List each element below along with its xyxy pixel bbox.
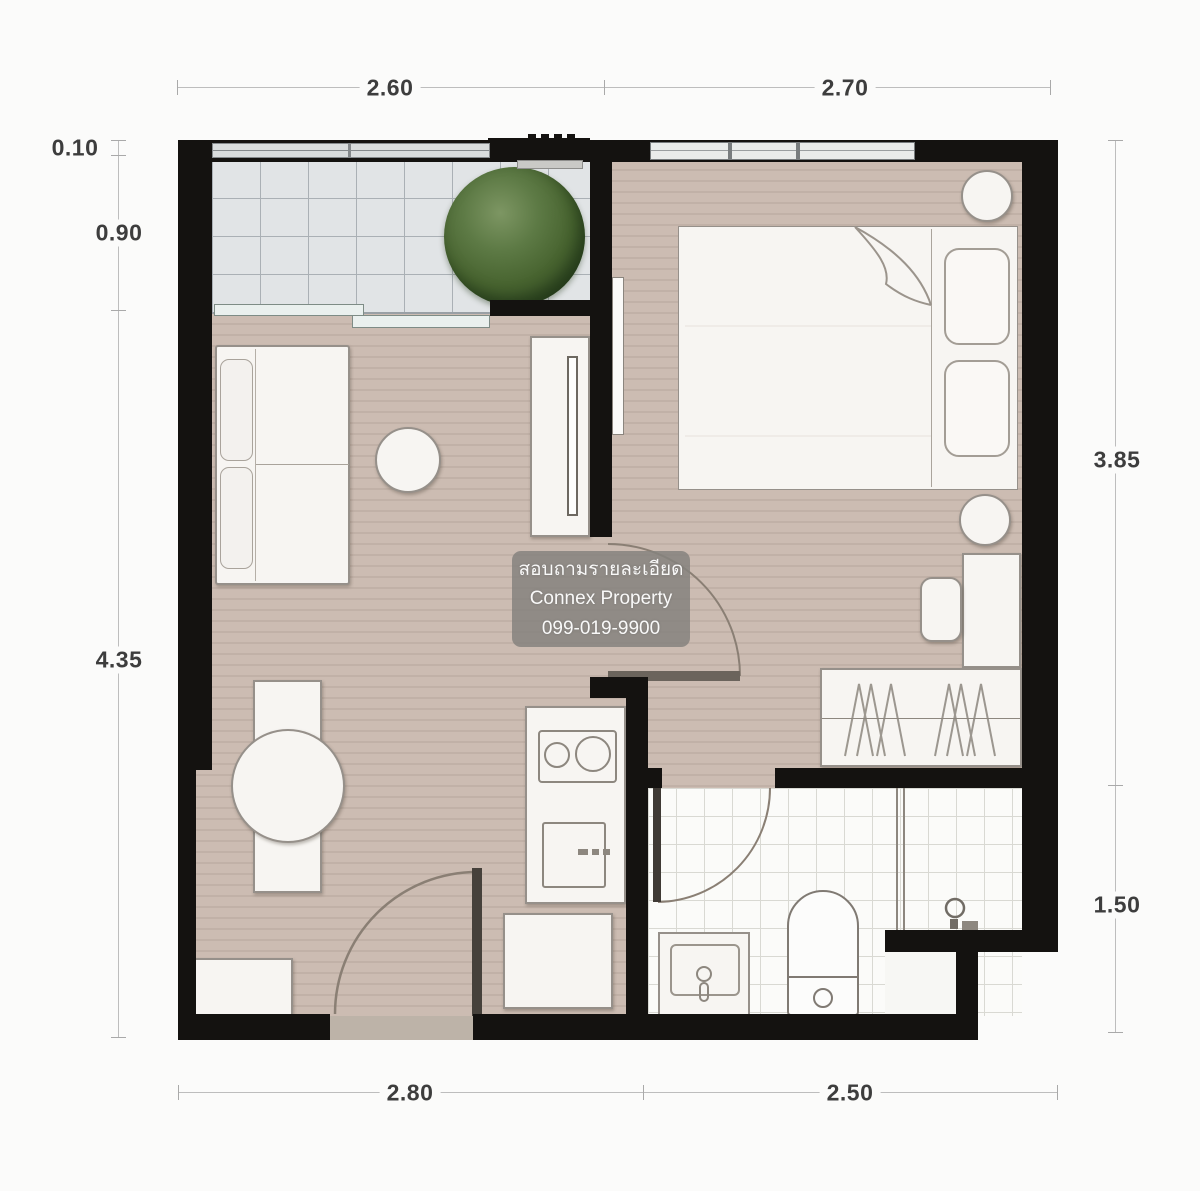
shower-glass-partition [896,788,905,932]
dimension-tick [177,80,178,95]
toilet [787,890,859,1016]
tv-living-icon [567,356,578,516]
sofa-seat-divider [255,464,349,465]
sofa-back-cushion [220,359,253,461]
wall-left-lower [178,770,196,1040]
railing-post [348,144,351,157]
wall-kitchen-bath-divider [626,677,648,1014]
dimension-tick [178,1085,179,1100]
dimension-tick [643,1085,644,1100]
bathroom-notch-floor [885,952,956,1016]
dimension-label-bottom-right: 2.50 [820,1080,881,1107]
wall-bottom-left [178,1014,330,1040]
dimension-tick [111,1037,126,1038]
sink-basin [670,944,740,996]
sofa-seat-edge [255,349,256,581]
bedroom-window [650,142,915,160]
mattress-line [685,325,931,327]
bed-sheet-line [931,229,932,487]
watermark: สอบถามรายละเอียด Connex Property 099-019… [512,551,690,647]
plant-icon [444,167,585,306]
balcony-sliding-door-panel-right [352,315,490,328]
wall-bathroom-door-post [648,768,662,788]
entry-shelf [190,958,293,1016]
cooktop [538,730,617,783]
dimension-tick [1108,785,1123,786]
shaft-tooth [528,134,536,142]
dimension-label-bathroom-depth: 1.50 [1087,892,1148,919]
coffee-table [375,427,441,493]
tv-bedroom-icon [612,277,624,435]
bedside-stool [961,170,1013,222]
dimension-tick [111,155,126,156]
dining-table [231,729,345,843]
balcony-railing [212,143,490,158]
wall-living-bedroom-divider [590,158,612,537]
shaft-tooth [541,134,549,142]
wall-bottom-main [473,1014,978,1040]
dimension-tick [1057,1085,1058,1100]
dimension-label-top-left: 2.60 [360,75,421,102]
dimension-tick [1050,80,1051,95]
wardrobe-rail [822,718,1020,719]
refrigerator-counter [503,913,613,1009]
tv-console [530,336,590,537]
dimension-line-left [118,140,119,1038]
watermark-line: Connex Property [530,584,673,613]
dimension-label-balcony-depth: 0.90 [89,220,150,247]
window-inner-line [651,150,914,151]
dimension-tick [1108,140,1123,141]
dimension-label-living-depth: 4.35 [89,647,150,674]
floor-plan-canvas: สอบถามรายละเอียด Connex Property 099-019… [0,0,1200,1191]
pillow [944,360,1010,457]
dimension-label-top-right: 2.70 [815,75,876,102]
mattress-line [685,435,931,437]
dimension-tick [111,140,126,141]
wall-bathroom-north [775,768,1022,788]
sofa [215,345,350,585]
dimension-tick [111,310,126,311]
entry-door-threshold [330,1016,473,1040]
desk [962,553,1021,668]
wall-right [1022,140,1058,952]
wall-left-upper [178,140,212,770]
window-mullion [728,143,732,159]
shaft-tooth [567,134,575,142]
pillow [944,248,1010,345]
watermark-line: 099-019-9900 [542,614,660,643]
dimension-line-top [177,87,1050,88]
wall-balcony-door-header [490,300,612,316]
railing-mid-line [213,150,489,151]
kitchen-counter [525,706,626,904]
wardrobe [820,668,1022,767]
watermark-line: สอบถามรายละเอียด [519,555,684,584]
balcony-sliding-door-panel-left [214,304,364,316]
desk-chair [920,577,962,642]
window-mullion [796,143,800,159]
toilet-tank-line [789,976,857,978]
dimension-label-bedroom-depth: 3.85 [1087,447,1148,474]
desk-stool [959,494,1011,546]
sink-vanity [658,932,750,1016]
dimension-tick [1108,1032,1123,1033]
shaft-ledge [517,160,583,169]
wall-bathroom-step [956,930,978,1040]
dimension-label-wall: 0.10 [45,135,106,162]
dimension-line-bottom [178,1092,1058,1093]
shaft-tooth [554,134,562,142]
sofa-back-cushion [220,467,253,569]
dimension-tick [604,80,605,95]
kitchen-sink [542,822,606,888]
dimension-label-bottom-left: 2.80 [380,1080,441,1107]
